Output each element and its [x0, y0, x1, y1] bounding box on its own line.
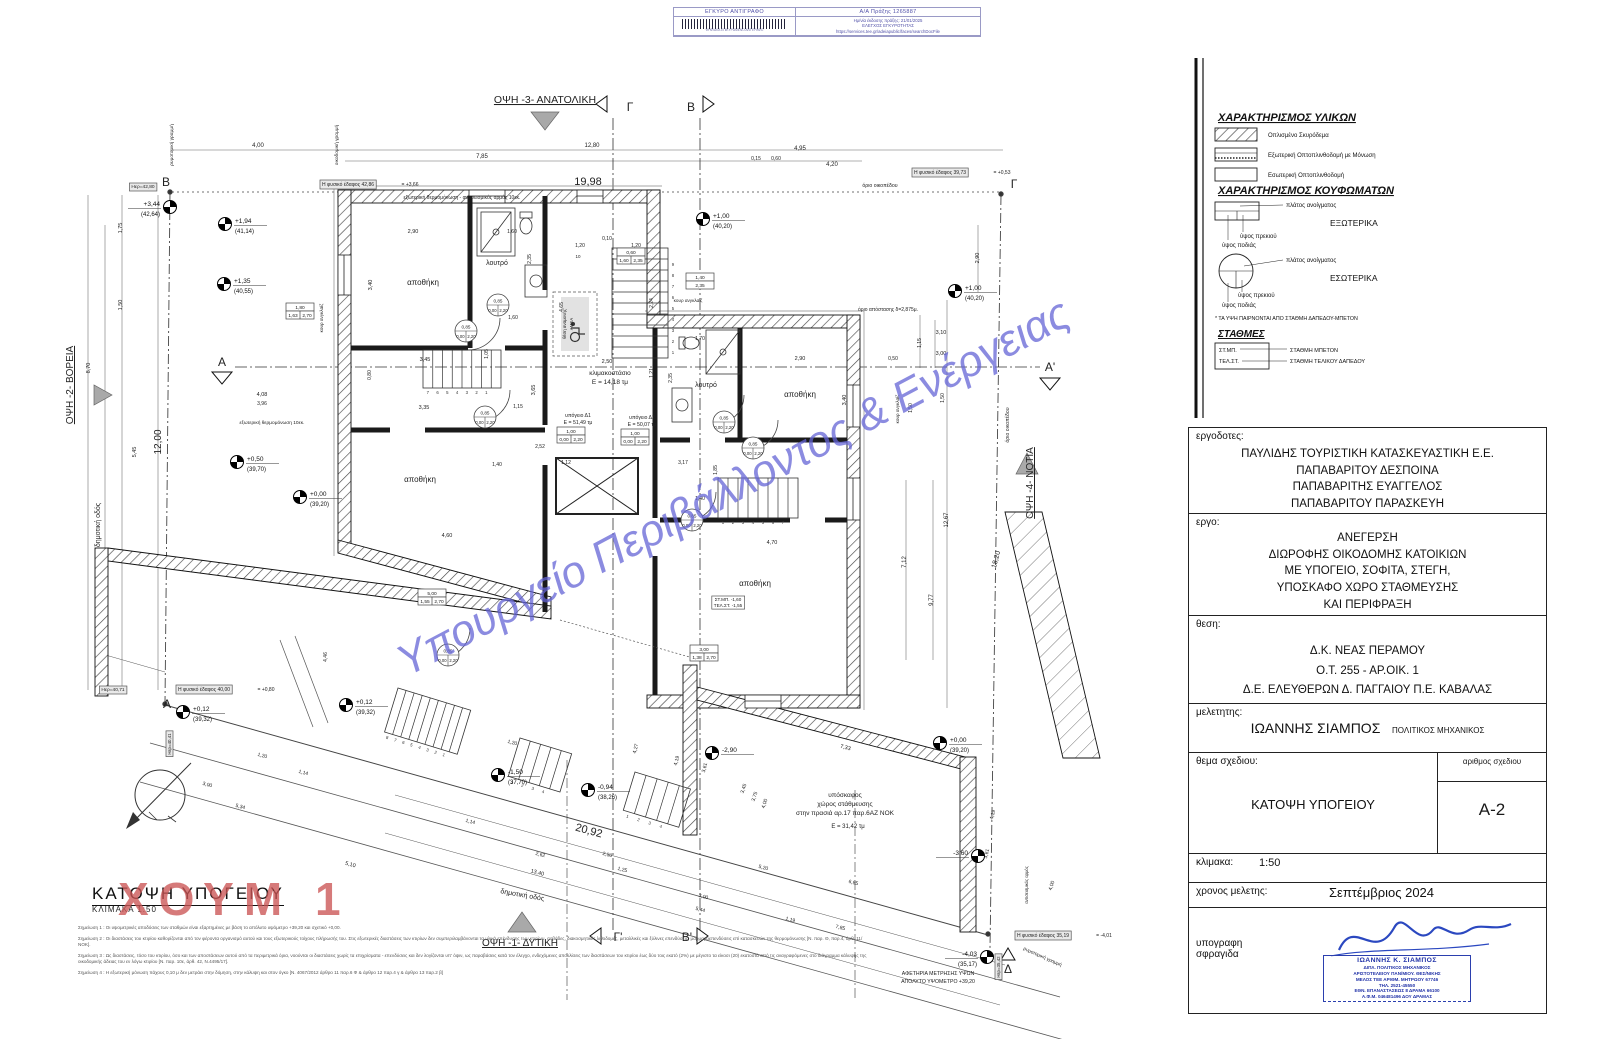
- svg-text:2: 2: [672, 339, 675, 344]
- svg-text:3: 3: [531, 786, 535, 792]
- plan-label: 4,08: [257, 392, 268, 398]
- plan-label: 4,19: [673, 755, 681, 766]
- svg-text:+0,00: +0,00: [310, 491, 327, 498]
- svg-text:12,80: 12,80: [584, 143, 600, 149]
- scale-section: κλιμακα: 1:50: [1189, 854, 1546, 883]
- drawing-sheet: 123456789765432112345678765432112341234 …: [0, 0, 1600, 1039]
- plan-label: δημοτική οδός: [94, 502, 102, 547]
- svg-text:Γ: Γ: [627, 100, 634, 114]
- svg-text:4,19: 4,19: [673, 755, 681, 766]
- elevation-marker: +1,35(40,55): [218, 278, 267, 296]
- svg-text:αποθήκη: αποθήκη: [784, 390, 816, 399]
- elevation-marker: +3,44(42,64): [128, 201, 177, 219]
- svg-text:1,20: 1,20: [575, 243, 585, 249]
- svg-text:2,20: 2,20: [637, 439, 647, 445]
- elevation-marker: +0,12(39,32): [177, 706, 226, 724]
- svg-text:4,19: 4,19: [989, 809, 997, 820]
- svg-text:ΟΨΗ -3- ΑΝΑΤΟΛΙΚΗ: ΟΨΗ -3- ΑΝΑΤΟΛΙΚΗ: [494, 94, 596, 106]
- svg-text:6: 6: [436, 390, 439, 395]
- plan-label: 2,90: [795, 356, 806, 362]
- legend-label: ύψος ποδιάς: [1222, 242, 1256, 249]
- svg-text:3,00: 3,00: [202, 781, 213, 789]
- svg-text:4,27: 4,27: [632, 743, 640, 754]
- legend-label: ύψος πρεκιού: [1238, 293, 1275, 299]
- svg-text:5,44: 5,44: [695, 906, 706, 914]
- plan-label: 7,12: [902, 556, 908, 568]
- svg-text:1,60: 1,60: [508, 315, 518, 321]
- svg-text:θέση αναμονής: θέση αναμονής: [562, 309, 567, 339]
- svg-text:Η φυσικό έδαφος 42,86: Η φυσικό έδαφος 42,86: [322, 181, 374, 188]
- svg-text:2,70: 2,70: [302, 313, 312, 319]
- svg-text:2,52: 2,52: [535, 444, 545, 450]
- plan-label: Γ: [627, 100, 634, 114]
- plan-label: όριο οικοπέδου: [862, 182, 897, 189]
- door-tag: 0,850,002,20: [713, 411, 735, 433]
- svg-text:0,85: 0,85: [481, 411, 490, 416]
- designer-name: ΙΩΑΝΝΗΣ ΣΙΑΜΠΟΣ: [1251, 720, 1381, 736]
- svg-text:3,40: 3,40: [368, 280, 374, 291]
- validation-link[interactable]: https://services.tee.gr/adeiapublic/face…: [798, 29, 978, 34]
- svg-text:5: 5: [446, 390, 449, 395]
- svg-text:20,92: 20,92: [574, 822, 604, 841]
- svg-text:2,62: 2,62: [535, 851, 546, 859]
- svg-text:3,00: 3,00: [698, 893, 709, 901]
- svg-text:1,20: 1,20: [507, 739, 518, 747]
- plan-label: εξωτερική θερμομόνωση - αντισεισμικός αρ…: [404, 194, 521, 201]
- svg-text:1,50: 1,50: [118, 300, 124, 311]
- date-section: χρονος μελετης: Σεπτέμβριος 2024: [1189, 883, 1546, 908]
- svg-text:1: 1: [626, 814, 630, 820]
- svg-text:2,70: 2,70: [706, 655, 716, 661]
- svg-text:ΣΤ.ΜΠ. -1,60ΤΕΛ.ΣΤ. -1,55: ΣΤ.ΜΠ. -1,60ΤΕΛ.ΣΤ. -1,55: [714, 597, 743, 608]
- plan-label: 4,46: [323, 652, 329, 662]
- designer-section: μελετητης: ΙΩΑΝΝΗΣ ΣΙΑΜΠΟΣ ΠΟΛΙΤΙΚΟΣ ΜΗΧ…: [1189, 704, 1546, 753]
- plan-label: λουτρό: [486, 259, 508, 267]
- legend-label: ΣΤΑΘΜΗ ΤΕΛΙΚΟΥ ΔΑΠΕΔΟΥ: [1290, 359, 1365, 365]
- svg-text:1,75: 1,75: [118, 223, 124, 234]
- svg-text:1,70: 1,70: [695, 336, 705, 342]
- plan-label: Α: [163, 697, 171, 711]
- svg-text:1,00: 1,00: [630, 431, 640, 437]
- legend-label: ΧΑΡΑΚΤΗΡΙΣΜΟΣ ΚΟΥΦΩΜΑΤΩΝ: [1217, 185, 1395, 197]
- svg-text:1,80: 1,80: [295, 305, 305, 311]
- plan-label: 7,85: [476, 154, 488, 160]
- plan-label: 1,60: [507, 229, 517, 235]
- svg-text:12,00: 12,00: [153, 429, 164, 454]
- window-tag: 5,001,552,70: [418, 589, 446, 605]
- plan-label: Α: [218, 355, 226, 369]
- plan-label: 3,00: [202, 781, 213, 789]
- plan-label: 1,75: [118, 223, 124, 234]
- plan-label: 3,65: [531, 385, 537, 396]
- svg-text:1,38: 1,38: [692, 655, 702, 661]
- plan-label: 2,50: [602, 851, 613, 859]
- svg-text:0,60: 0,60: [771, 156, 781, 162]
- plan-label: 2,62: [535, 851, 546, 859]
- window-tag: 1,402,35: [686, 273, 714, 289]
- plan-label: 9,77: [929, 594, 935, 606]
- svg-text:+0,50: +0,50: [247, 456, 264, 463]
- scale-value: 1:50: [1259, 857, 1280, 869]
- owners-section: εργοδοτες: ΠΑΥΛΙΔΗΣ ΤΟΥΡΙΣΤΙΚΗ ΚΑΤΑΣΚΕΥΑ…: [1189, 428, 1546, 514]
- svg-text:1,15: 1,15: [513, 404, 523, 410]
- drawing-subject: ΚΑΤΟΨΗ ΥΠΟΓΕΙΟΥ: [1189, 797, 1437, 812]
- plan-label: 3,40: [368, 280, 374, 291]
- subject-section: θεμα σχεδιου: ΚΑΤΟΨΗ ΥΠΟΓΕΙΟΥ αριθμος σχ…: [1189, 753, 1546, 854]
- svg-text:Β: Β: [162, 175, 170, 189]
- plan-label: 1,25: [617, 866, 628, 874]
- plan-label: 5,34: [235, 803, 246, 811]
- svg-text:8: 8: [672, 273, 675, 278]
- plan-label: δημοτική οδός: [500, 887, 546, 903]
- svg-text:Η φυσικό έδαφος 35,19: Η φυσικό έδαφος 35,19: [1017, 932, 1069, 939]
- svg-text:Ε = 14,18 τμ: Ε = 14,18 τμ: [592, 379, 628, 386]
- svg-text:2,20: 2,20: [499, 308, 508, 313]
- svg-text:2,90: 2,90: [795, 356, 806, 362]
- plan-label: 12,00: [153, 429, 164, 454]
- svg-text:όριο οικοπέδου: όριο οικοπέδου: [1004, 407, 1011, 442]
- svg-text:0,00: 0,00: [623, 439, 633, 445]
- svg-text:1,00: 1,00: [566, 429, 576, 435]
- plan-label: όριο οικοπέδου: [1004, 407, 1011, 442]
- svg-text:3,65: 3,65: [531, 385, 537, 396]
- svg-text:7,33: 7,33: [839, 744, 851, 753]
- svg-text:2,50: 2,50: [602, 359, 613, 365]
- legend-label: ΤΕΛ.ΣΤ.: [1219, 359, 1239, 365]
- note-3: Σημείωση 3 : Ως διαστάσεις, τόσο του κτι…: [78, 953, 868, 965]
- plan-label: υπόσκαφος: [828, 791, 862, 799]
- svg-text:εξωτερική θερμομόνωση - αντισε: εξωτερική θερμομόνωση - αντισεισμικός αρ…: [404, 194, 521, 201]
- svg-text:2,20: 2,20: [725, 425, 734, 430]
- plan-label: λουτρό: [695, 381, 717, 389]
- plan-label: Γ: [1011, 177, 1018, 191]
- svg-text:κουρ ανγκλαίζ: κουρ ανγκλαίζ: [674, 298, 703, 304]
- svg-text:2,50: 2,50: [602, 851, 613, 859]
- plan-label: υπόγειο Δ1: [565, 412, 591, 419]
- svg-text:5: 5: [410, 742, 414, 748]
- plan-label: 4,60: [442, 533, 453, 539]
- staircase: 1234: [621, 772, 690, 834]
- plan-label: 2,35: [668, 373, 674, 383]
- svg-text:(35,17): (35,17): [958, 962, 977, 968]
- legend-label: * ΤΑ ΥΨΗ ΠΑΙΡΝΟΝΤΑΙ ΑΠΟ ΣΤΑΘΜΗ ΔΑΠΕΔΟΥ-Μ…: [1215, 316, 1358, 322]
- elevation-marker: -2,90: [706, 747, 755, 760]
- svg-text:χώρος στάθμευσης: χώρος στάθμευσης: [817, 800, 872, 808]
- elevation-marker: +1,00(40,20): [697, 213, 746, 231]
- plan-label: Ε = 31,42 τμ: [831, 824, 865, 830]
- svg-text:2,90: 2,90: [408, 229, 419, 235]
- svg-text:1: 1: [485, 390, 488, 395]
- plan-label: 1,20: [257, 752, 268, 760]
- plan-label: 12,80: [584, 143, 600, 149]
- svg-text:Ε = 50,07 τμ: Ε = 50,07 τμ: [628, 422, 657, 428]
- svg-text:0,85: 0,85: [494, 299, 503, 304]
- svg-text:(39,70): (39,70): [247, 467, 266, 473]
- svg-text:3,17: 3,17: [678, 460, 688, 466]
- plan-label: οικοδομική γραμμή: [333, 124, 340, 165]
- plan-label: Hερ=40,41: [166, 731, 173, 757]
- svg-text:1,55: 1,55: [420, 599, 430, 605]
- plan-label: 20,92: [574, 822, 604, 841]
- svg-text:4,60: 4,60: [442, 533, 453, 539]
- plan-label: 3,35: [419, 405, 430, 411]
- stamp-barcode: ΨΗΦΙΑΚΑ ΕΠΙΚΥΡΩΜΕΝΟ ΑΝΤΙΓΡΑΦΟ: [674, 17, 796, 36]
- svg-text:1,14: 1,14: [298, 769, 309, 777]
- plan-label: αποθήκη: [739, 579, 771, 588]
- svg-text:ΑΦΕΤΗΡΙΑ ΜΕΤΡΗΣΗΣ ΥΨΩΝ: ΑΦΕΤΗΡΙΑ ΜΕΤΡΗΣΗΣ ΥΨΩΝ: [902, 971, 975, 977]
- door-tag: 0,850,002,20: [474, 406, 496, 428]
- svg-text:Β: Β: [687, 100, 695, 114]
- svg-text:1,25: 1,25: [617, 866, 628, 874]
- svg-text:4,08: 4,08: [257, 392, 268, 398]
- svg-text:1,63: 1,63: [288, 313, 298, 319]
- plan-label: Δ: [1004, 962, 1012, 976]
- svg-text:3,45: 3,45: [420, 357, 431, 363]
- drawing-number-cell: αριθμος σχεδιου Α-2: [1437, 753, 1546, 853]
- svg-text:δημοτική οδός: δημοτική οδός: [500, 887, 546, 903]
- svg-text:3,00: 3,00: [699, 647, 709, 653]
- svg-text:Η φυσικό έδαφος 39,73: Η φυσικό έδαφος 39,73: [914, 169, 966, 176]
- plan-label: 1,15: [513, 404, 523, 410]
- svg-text:4,46: 4,46: [323, 652, 329, 662]
- svg-text:3,45: 3,45: [740, 783, 749, 794]
- shaft: [556, 458, 638, 514]
- svg-text:10: 10: [575, 254, 581, 259]
- svg-text:19,98: 19,98: [574, 176, 602, 188]
- staircase: 123456789: [612, 248, 675, 358]
- svg-text:(40,20): (40,20): [965, 296, 984, 302]
- svg-text:1,21: 1,21: [649, 368, 655, 378]
- plan-label: 1,60: [508, 315, 518, 321]
- elevation-marker: +0,12(39,32): [340, 699, 389, 717]
- svg-text:7,85: 7,85: [476, 154, 488, 160]
- plan-label: 18,20: [991, 550, 1002, 569]
- svg-text:0,00: 0,00: [475, 420, 484, 425]
- window-tag: 1,000,002,20: [557, 427, 585, 443]
- svg-text:1,40: 1,40: [695, 275, 705, 281]
- svg-text:+0,12: +0,12: [193, 706, 210, 713]
- svg-text:-0,94: -0,94: [598, 784, 613, 791]
- svg-text:3,10: 3,10: [936, 330, 947, 336]
- svg-text:0,15: 0,15: [751, 156, 761, 162]
- plan-label: 6,85: [848, 879, 859, 887]
- legend-label: ΣΤΑΘΜΗ ΜΠΕΤΟΝ: [1290, 348, 1338, 354]
- plan-label: 7,33: [839, 744, 851, 753]
- svg-text:5,10: 5,10: [344, 861, 356, 870]
- door-tag: 0,850,002,20: [487, 294, 509, 316]
- plan-label: ρυμοτομική γραμμή: [168, 124, 175, 166]
- svg-text:2,20: 2,20: [486, 420, 495, 425]
- svg-text:0,85: 0,85: [462, 325, 471, 330]
- plan-label: 3,00: [698, 893, 709, 901]
- svg-text:5: 5: [672, 306, 675, 311]
- svg-text:0,85: 0,85: [749, 442, 758, 447]
- svg-text:2,24: 2,24: [649, 298, 655, 308]
- svg-text:-3,60: -3,60: [953, 850, 968, 857]
- svg-text:όριο οικοπέδου: όριο οικοπέδου: [862, 182, 897, 189]
- view-east-triangle: [531, 112, 559, 130]
- plan-label: 1,50: [118, 300, 124, 311]
- svg-text:3: 3: [466, 390, 469, 395]
- svg-text:4,70: 4,70: [767, 540, 778, 546]
- note-2: Σημείωση 2 : Οι διαστάσεις του κτιρίου κ…: [78, 936, 868, 948]
- elevation-marker: -4,03(35,17): [945, 951, 994, 969]
- svg-text:7: 7: [672, 284, 675, 289]
- svg-text:0,50: 0,50: [888, 356, 898, 362]
- svg-text:Ε = 51,49 τμ: Ε = 51,49 τμ: [564, 420, 593, 426]
- svg-text:2,70: 2,70: [434, 599, 444, 605]
- stamp-right-title: Α/Α Πράξης 1265887: [796, 8, 980, 17]
- svg-text:2,35: 2,35: [695, 283, 705, 289]
- svg-text:+0,00: +0,00: [950, 737, 967, 744]
- svg-text:3: 3: [672, 328, 675, 333]
- svg-text:εξωτερική θερμομόνωση 10εκ.: εξωτερική θερμομόνωση 10εκ.: [240, 419, 305, 426]
- svg-text:1: 1: [442, 752, 446, 758]
- svg-text:οικοδομική γραμμή: οικοδομική γραμμή: [333, 124, 340, 165]
- svg-text:-1,50: -1,50: [508, 769, 523, 776]
- plan-label: Hερ=35,42: [995, 954, 1002, 980]
- plan-label: Η φυσικό έδαφος 42,86: [320, 180, 376, 189]
- svg-text:4: 4: [541, 789, 545, 795]
- plan-label: 1,15: [917, 338, 923, 348]
- svg-text:+3,44: +3,44: [144, 201, 161, 208]
- legend-label: ΕΞΩΤΕΡΙΚΑ: [1330, 218, 1378, 228]
- legend-label: Οπλισμένο Σκυρόδεμα: [1268, 132, 1329, 139]
- legend-label: ύψος ποδιάς: [1222, 302, 1256, 309]
- plan-label: αντισεισμικός αρμός: [1024, 866, 1029, 904]
- legend-label: ΣΤ.ΜΠ.: [1219, 348, 1237, 354]
- plan-label: 19,98: [574, 176, 602, 188]
- elevation-marker: +0,50(39,70): [231, 456, 280, 474]
- plan-label: 2,52: [535, 444, 545, 450]
- legend-label: Εσωτερική Οπτοπλινθοδομή: [1268, 172, 1344, 179]
- plan-label: 3,61: [701, 762, 709, 773]
- svg-text:υπόγειο Δ1: υπόγειο Δ1: [565, 412, 591, 419]
- svg-text:1: 1: [672, 350, 675, 355]
- plan-label: θέση αναμονής: [562, 309, 567, 339]
- plan-label: χώρος στάθμευσης: [817, 800, 872, 808]
- svg-text:(39,32): (39,32): [193, 717, 212, 723]
- svg-text:0,00: 0,00: [559, 437, 569, 443]
- svg-text:3,96: 3,96: [257, 401, 267, 407]
- plan-label: αποθήκη: [784, 390, 816, 399]
- validation-stamp: ΕΓΚΥΡΟ ΑΝΤΙΓΡΑΦΟ Α/Α Πράξης 1265887 ΨΗΦΙ…: [673, 7, 981, 37]
- svg-text:Hερ=35,42: Hερ=35,42: [996, 956, 1001, 978]
- plan-label: 10: [575, 254, 581, 259]
- project-section: εργο: ΑΝΕΓΕΡΣΗ ΔΙΩΡΟΦΗΣ ΟΙΚΟΔΟΜΗΣ ΚΑΤΟΙΚ…: [1189, 514, 1546, 616]
- svg-text:δημοτική οδός: δημοτική οδός: [94, 502, 102, 547]
- svg-text:ρυμοτομική γραμμή: ρυμοτομική γραμμή: [1022, 945, 1063, 968]
- location-section: θεση: Δ.Κ. ΝΕΑΣ ΠΕΡΑΜΟΥ Ο.Τ. 255 - ΑΡ.ΟΙ…: [1189, 616, 1546, 704]
- staircase: 87654321: [383, 688, 471, 761]
- svg-text:6: 6: [402, 740, 406, 746]
- svg-text:+1,00: +1,00: [965, 285, 982, 292]
- svg-text:3: 3: [426, 747, 430, 753]
- svg-text:λουτρό: λουτρό: [486, 259, 508, 267]
- svg-text:Hερ=42,80: Hερ=42,80: [131, 184, 154, 190]
- svg-text:2,20: 2,20: [573, 437, 583, 443]
- svg-text:0,00: 0,00: [488, 308, 497, 313]
- plan-label: ΟΨΗ -4- ΝΟΤΙΑ: [1025, 447, 1036, 519]
- plan-label: ρυμοτομική γραμμή: [1022, 945, 1063, 968]
- svg-text:2,35: 2,35: [633, 258, 643, 264]
- svg-text:(39,20): (39,20): [950, 748, 969, 754]
- note-1: Σημείωση 1 : Οι υψομετρικές αποδόσεις τω…: [78, 925, 868, 931]
- svg-text:5,45: 5,45: [132, 447, 138, 458]
- plan-label: 1,14: [465, 818, 476, 826]
- plan-label: 1,40: [492, 462, 502, 468]
- svg-text:ΟΨΗ -2- ΒΟΡΕΙΑ: ΟΨΗ -2- ΒΟΡΕΙΑ: [65, 345, 76, 424]
- plan-label: = +0,80: [258, 687, 275, 693]
- title-block: εργοδοτες: ΠΑΥΛΙΔΗΣ ΤΟΥΡΙΣΤΙΚΗ ΚΑΤΑΣΚΕΥΑ…: [1188, 427, 1547, 1014]
- designer-title: ΠΟΛΙΤΙΚΟΣ ΜΗΧΑΝΙΚΟΣ: [1392, 726, 1484, 735]
- plan-label: ΑΦΕΤΗΡΙΑ ΜΕΤΡΗΣΗΣ ΥΨΩΝ: [902, 971, 975, 977]
- svg-text:8: 8: [385, 735, 389, 741]
- plan-label: εξωτερική θερμομόνωση 10εκ.: [240, 419, 305, 426]
- svg-text:4,95: 4,95: [794, 146, 806, 152]
- plan-label: ΑΠΟΛΥΤΟ ΥΨΟΜΕΤΡΟ +39,20: [901, 979, 975, 985]
- svg-text:Hερ=40,71: Hερ=40,71: [101, 687, 124, 693]
- plan-label: αποθήκη: [404, 475, 436, 484]
- svg-text:7: 7: [393, 737, 397, 743]
- door-tag: 0,850,002,20: [455, 320, 477, 342]
- svg-text:Α: Α: [163, 697, 171, 711]
- svg-text:4,00: 4,00: [252, 143, 264, 149]
- plan-label: 1,20: [575, 243, 585, 249]
- svg-text:(37,70): (37,70): [508, 780, 527, 786]
- notes-block: Σημείωση 1 : Οι υψομετρικές αποδόσεις τω…: [78, 925, 868, 981]
- svg-text:ΟΨΗ -4- ΝΟΤΙΑ: ΟΨΗ -4- ΝΟΤΙΑ: [1025, 447, 1036, 519]
- svg-text:Α': Α': [1045, 360, 1055, 374]
- plan-label: υπόγειο Δ2: [629, 414, 655, 421]
- svg-text:13,40: 13,40: [530, 868, 545, 877]
- plan-label: 0,80: [367, 370, 373, 380]
- plan-label: κλιμακοστάσιο: [589, 369, 631, 377]
- view-north-triangle: [94, 385, 112, 405]
- plan-label: Β: [162, 175, 170, 189]
- svg-text:2: 2: [475, 390, 478, 395]
- stamp-left-title: ΕΓΚΥΡΟ ΑΝΤΙΓΡΑΦΟ: [674, 8, 796, 17]
- svg-text:1,19: 1,19: [785, 916, 796, 924]
- svg-text:= -4,01: = -4,01: [1096, 933, 1112, 939]
- plan-label: Ε = 51,49 τμ: [564, 420, 593, 426]
- legend-label: Εξωτερική Οπτοπλινθοδομή με Μόνωση: [1268, 152, 1376, 159]
- wheelchair-spot: [553, 292, 597, 356]
- svg-text:-4,03: -4,03: [962, 951, 977, 958]
- study-date: Σεπτέμβριος 2024: [1329, 885, 1434, 900]
- svg-text:αντισεισμικός αρμός: αντισεισμικός αρμός: [1024, 866, 1029, 904]
- plan-label: 4,20: [826, 162, 838, 168]
- plan-label: = -4,01: [1096, 933, 1112, 939]
- plan-label: 8,70: [86, 363, 92, 374]
- svg-text:ρυμοτομική γραμμή: ρυμοτομική γραμμή: [168, 124, 175, 166]
- elevation-marker: +0,00(39,20): [294, 491, 343, 509]
- legend-label: πλάτος ανοίγματος: [1286, 257, 1336, 264]
- plan-label: 5,44: [695, 906, 706, 914]
- svg-text:υπόσκαφος: υπόσκαφος: [828, 791, 862, 799]
- svg-text:3: 3: [648, 820, 652, 826]
- svg-text:+1,00: +1,00: [713, 213, 730, 220]
- plan-label: 4,19: [989, 809, 997, 820]
- plan-label: Ε = 50,07 τμ: [628, 422, 657, 428]
- svg-text:(39,32): (39,32): [356, 710, 375, 716]
- svg-text:2,90: 2,90: [975, 253, 981, 264]
- svg-text:3,61: 3,61: [701, 762, 709, 773]
- plan-label: Hερ=42,80: [129, 183, 156, 191]
- engineer-stamp: ΙΩΑΝΝΗΣ Κ. ΣΙΑΜΠΟΣ ΔΙΠΛ. ΠΟΛΙΤΙΚΟΣ ΜΗΧΑΝ…: [1323, 955, 1471, 1002]
- plan-label: Η φυσικό έδαφος 40,00: [176, 685, 232, 694]
- window-tag: 1,801,632,70: [286, 303, 314, 319]
